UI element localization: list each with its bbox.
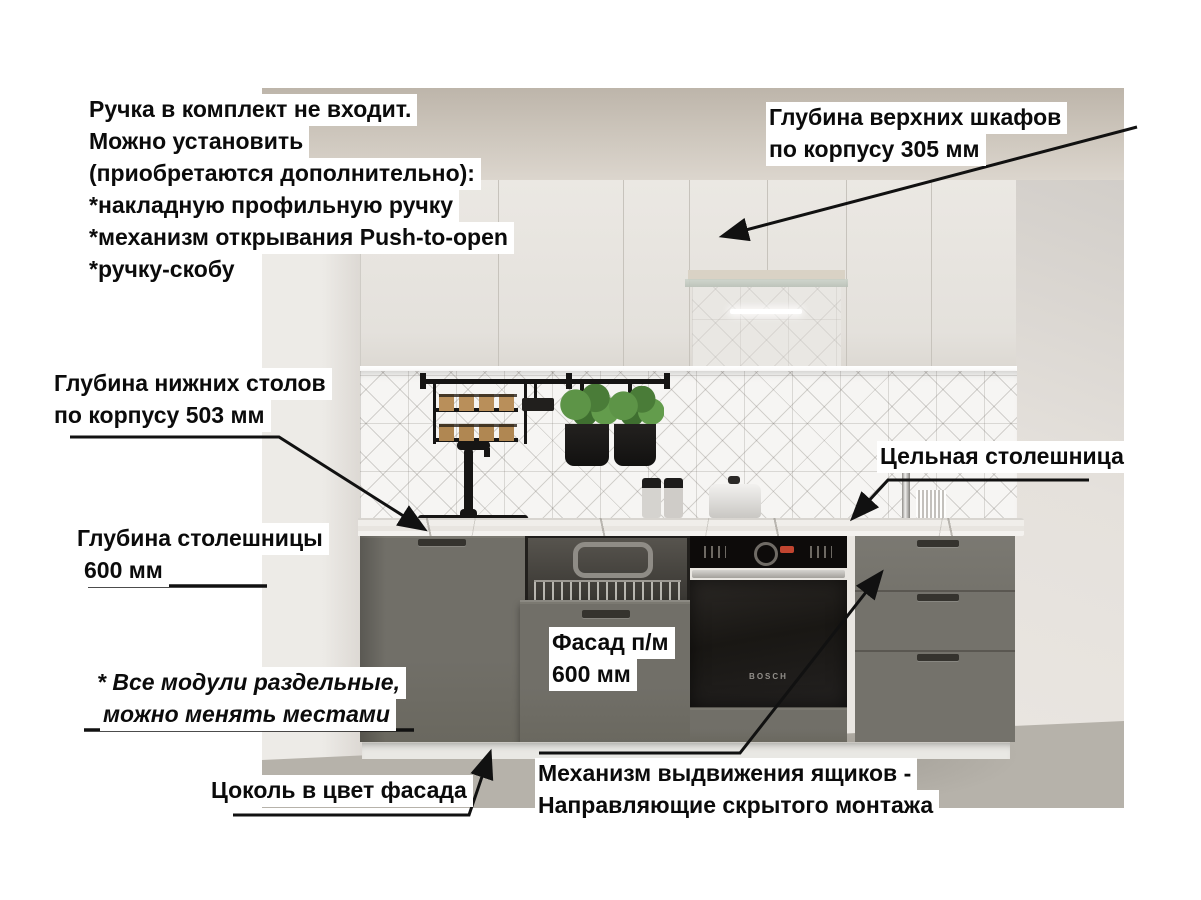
spice-grinder [664,478,683,518]
hood-glass-visor [685,279,848,287]
cooker-hood [688,270,845,368]
faucet [464,448,473,512]
annotation-lower-depth: Глубина нижних столов по корпусу 503 мм [51,368,332,432]
cabinet-handle [418,539,466,546]
oven-panel-ticks [704,546,726,558]
annotation-line: Глубина нижних столов [51,368,332,400]
annotation-solid-countertop: Цельная столешница [877,441,1130,473]
cabinet-seam [846,180,847,370]
annotation-line: Фасад п/м [549,627,675,659]
dishwasher-door-handle [582,610,630,618]
annotation-facade-size: Фасад п/м 600 мм [549,627,675,691]
annotation-line: 600 мм [81,555,169,587]
dishwasher-door-cutout [573,542,653,578]
countertop-marble-veins [358,518,1024,536]
utensil-holder [522,398,554,411]
spice-grinder [642,478,661,518]
rail-bracket [664,373,670,389]
annotation-line: Ручка в комплект не входит. [86,94,417,126]
annotation-drawer-mechanism: Механизм выдвижения ящиков - Направляющи… [535,758,939,822]
annotation-line: Механизм выдвижения ящиков - [535,758,917,790]
annotation-line: Цельная столешница [877,441,1130,473]
oven-panel-ticks [810,546,832,558]
cabinet-seam [931,180,932,370]
annotation-countertop-depth: Глубина столешницы 600 мм [74,523,329,587]
kettle [709,484,761,518]
annotation-line: *механизм открывания Push-to-open [86,222,514,254]
cabinet-seam [767,180,768,270]
plant-pot-left [565,424,609,466]
hood-body [692,287,841,368]
annotation-handle-note: Ручка в комплект не входит. Можно устано… [86,94,514,286]
annotation-line: *накладную профильную ручку [86,190,459,222]
annotation-line: 600 мм [549,659,637,691]
oven-lower-drawer [690,707,847,743]
annotation-line: по корпусу 503 мм [51,400,271,432]
annotation-upper-depth: Глубина верхних шкафов по корпусу 305 мм [766,102,1067,166]
drawer-divider [855,590,1015,592]
drawer-divider [855,650,1015,652]
infographic-canvas: BOSCH Ручка в комплект не входит. М [0,0,1201,900]
spice-jars [439,394,517,411]
spice-rack [433,384,527,444]
hood-reflection [692,287,841,368]
oven-door: BOSCH [690,580,847,707]
spice-jars [439,424,517,441]
faucet-spout-tip [484,448,490,457]
oven-brand-logo: BOSCH [690,672,847,681]
oven-handle [692,570,845,578]
annotation-line: (приобретаются дополнительно): [86,158,481,190]
annotation-line: *ручку-скобу [86,254,241,286]
oven-display-ring [754,542,778,566]
annotation-line: Можно установить [86,126,309,158]
oven-display-red [780,546,794,553]
rail-bracket [420,373,426,389]
annotation-line: Направляющие скрытого монтажа [535,790,939,822]
drawer-handle-2 [917,594,959,601]
glass-cup [916,490,946,518]
plant-pot-right [614,424,656,466]
hood-light [730,309,802,314]
annotation-line: Цоколь в цвет фасада [208,775,473,807]
annotation-line: можно менять местами [100,699,396,731]
annotation-line: Глубина верхних шкафов [766,102,1067,134]
drawer-handle-3 [917,654,959,661]
countertop [358,518,1024,536]
oven: BOSCH [690,536,847,707]
annotation-line: * Все модули раздельные, [94,667,406,699]
cabinet-seam [623,180,624,370]
kettle-lid-knob [728,476,740,484]
annotation-line: Глубина столешницы [74,523,329,555]
annotation-line: по корпусу 305 мм [766,134,986,166]
annotation-plinth: Цоколь в цвет фасада [208,775,473,807]
drawer-unit [855,536,1015,742]
oven-control-panel [690,536,847,568]
annotation-modules-note: * Все модули раздельные, можно менять ме… [94,667,406,731]
plinth [362,742,1010,759]
drawer-handle-1 [917,540,959,547]
